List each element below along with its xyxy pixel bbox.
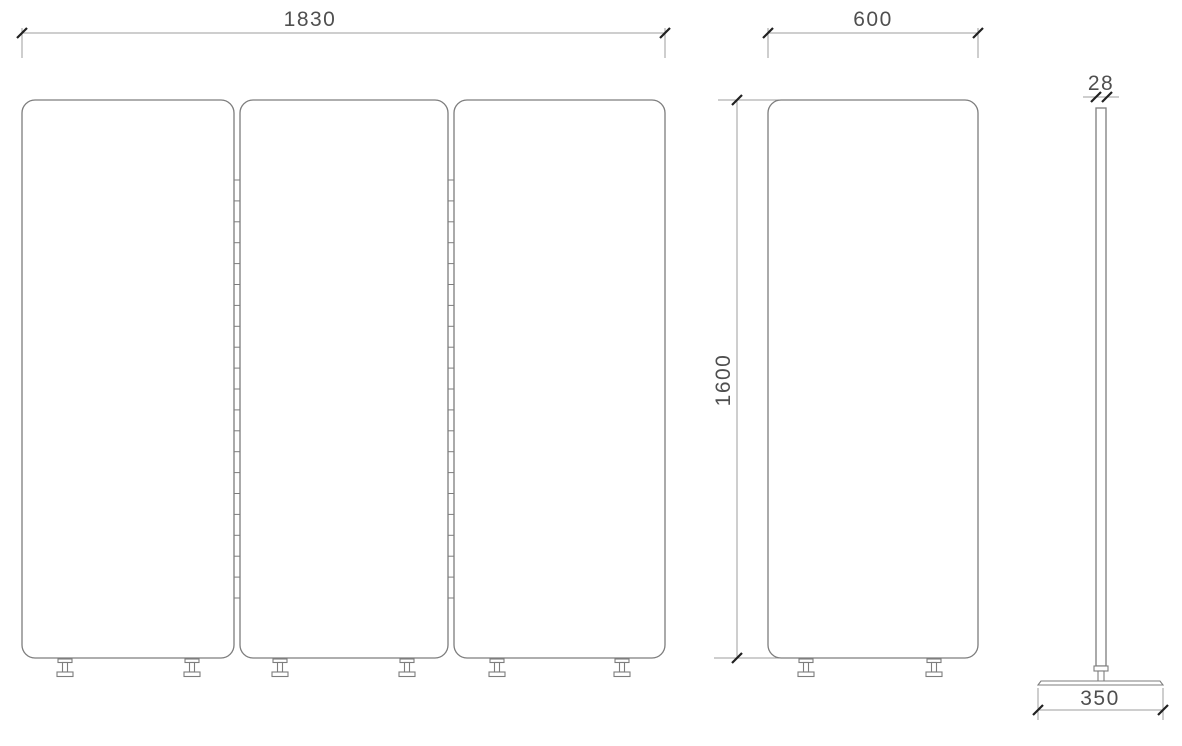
foot-bracket — [1094, 666, 1108, 671]
front-panel-1 — [22, 100, 234, 658]
base-plate — [1038, 681, 1163, 685]
dim-label-panel-height: 1600 — [712, 354, 735, 407]
foot-stem — [1098, 671, 1104, 682]
single-panel-view: 600 1600 — [712, 8, 983, 677]
hinge-rungs-right — [448, 180, 454, 598]
side-view: 28 350 — [1033, 72, 1168, 720]
side-panel-profile — [1096, 108, 1106, 666]
technical-drawing: 1830 600 1600 — [0, 0, 1182, 746]
panel-foot — [272, 659, 288, 677]
panel-foot — [926, 659, 942, 677]
front-panel-2 — [240, 100, 448, 658]
dim-panel-height: 1600 — [712, 95, 790, 663]
drawing-sheet: 1830 600 1600 — [0, 0, 1182, 746]
front-view: 1830 — [17, 8, 670, 677]
dim-panel-thickness: 28 — [1083, 72, 1119, 102]
single-panel — [768, 100, 978, 658]
dim-label-panel-width: 600 — [853, 8, 893, 31]
dim-label-panel-thickness: 28 — [1088, 72, 1114, 95]
panel-foot — [489, 659, 505, 677]
panel-foot — [57, 659, 73, 677]
dim-base-width: 350 — [1033, 687, 1168, 720]
dim-overall-width: 1830 — [17, 8, 670, 58]
panel-foot — [184, 659, 200, 677]
panel-foot — [614, 659, 630, 677]
dim-label-overall-width: 1830 — [284, 8, 337, 31]
panel-foot — [798, 659, 814, 677]
hinge-rungs-left — [234, 180, 240, 598]
front-panel-3 — [454, 100, 665, 658]
panel-foot — [399, 659, 415, 677]
dim-label-base-width: 350 — [1080, 687, 1120, 710]
dim-panel-width: 600 — [763, 8, 983, 58]
